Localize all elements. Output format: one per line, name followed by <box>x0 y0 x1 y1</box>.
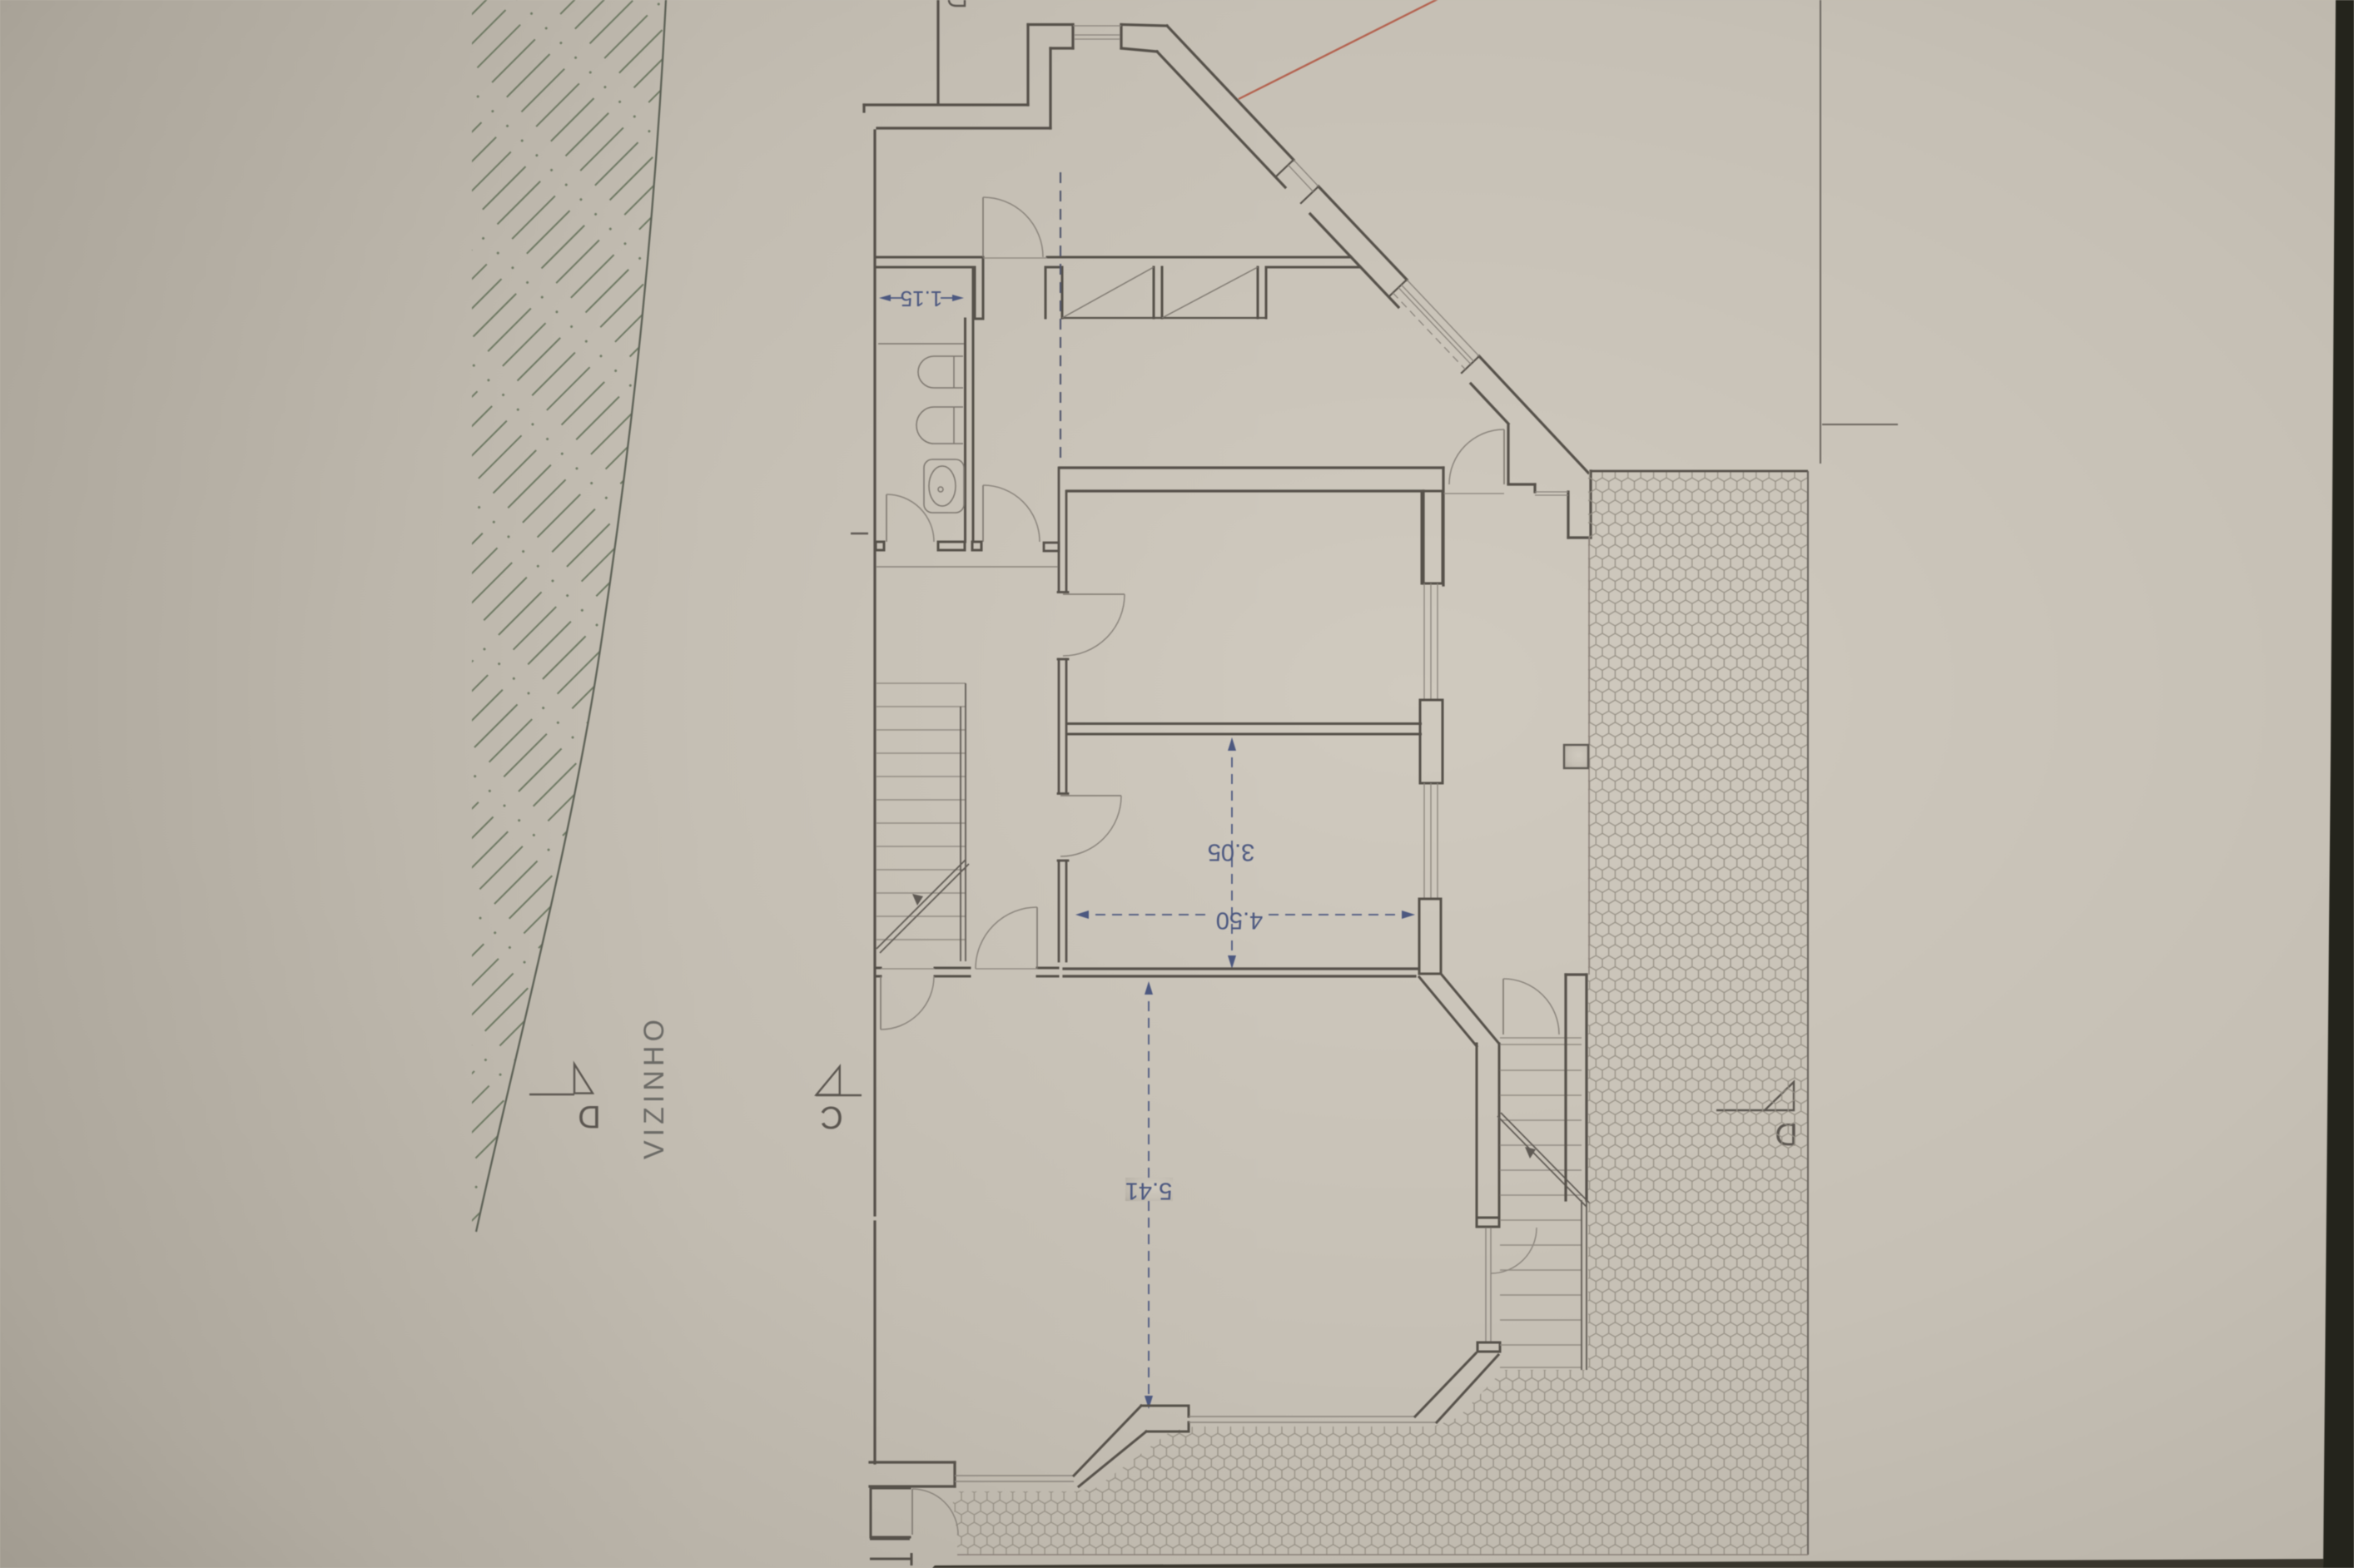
svg-text:4.50: 4.50 <box>1216 906 1263 933</box>
svg-text:D: D <box>578 1099 600 1134</box>
svg-text:VIZINHO: VIZINHO <box>638 1015 670 1159</box>
svg-text:C: C <box>820 1099 842 1134</box>
svg-text:1.15: 1.15 <box>901 286 943 311</box>
svg-text:3.05: 3.05 <box>1208 838 1254 865</box>
svg-text:5.41: 5.41 <box>1125 1177 1172 1203</box>
